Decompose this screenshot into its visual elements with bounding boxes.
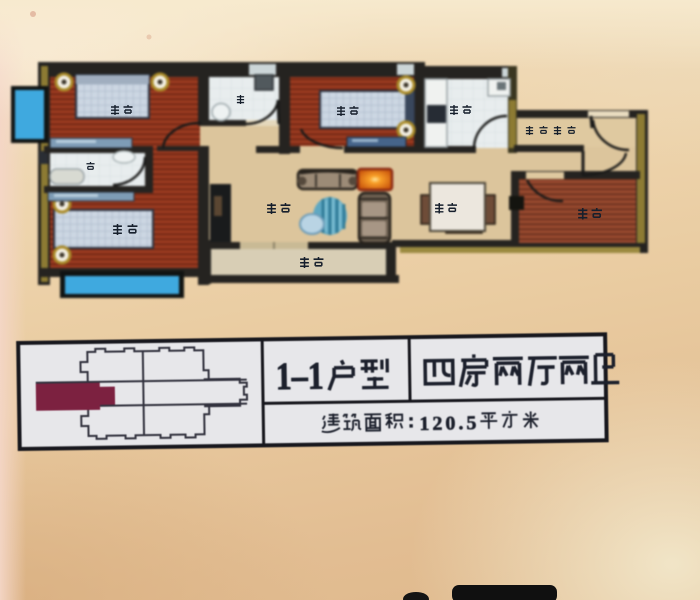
svg-text:120.5: 120.5: [419, 412, 479, 435]
svg-text:1–1: 1–1: [275, 354, 324, 398]
